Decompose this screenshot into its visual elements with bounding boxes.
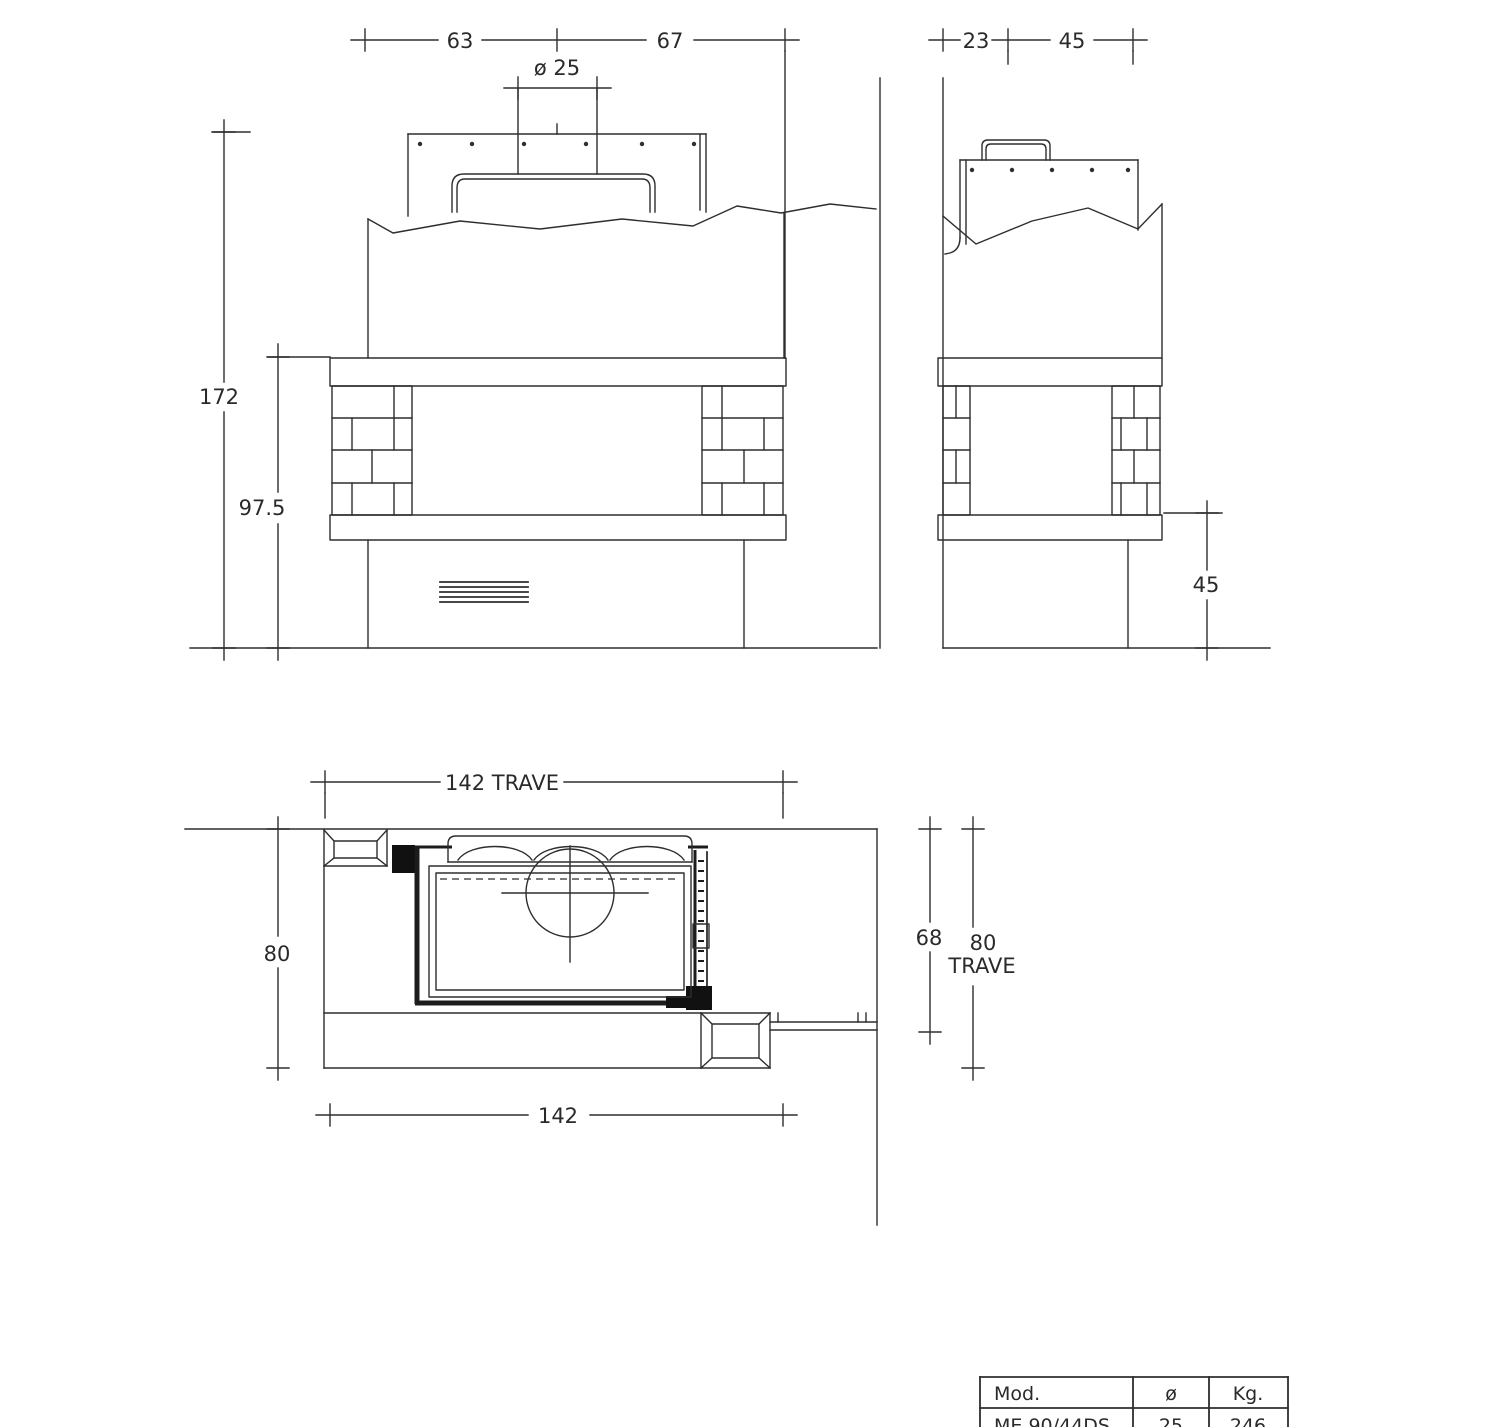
- dim-inner-depth-label: 68: [916, 926, 943, 950]
- side-break-line: [943, 204, 1162, 244]
- right-hinge-block: [686, 986, 712, 1010]
- left-hinge-block: [392, 845, 415, 873]
- dim-depth-front-label: 45: [1059, 29, 1086, 53]
- dim-width-right-label: 67: [657, 29, 684, 53]
- side-mantel-and-bricks: [938, 358, 1270, 648]
- plan-outline: [185, 829, 877, 1225]
- plan-view: 142 TRAVE: [185, 771, 1016, 1225]
- table-row-weight: 246: [1230, 1415, 1266, 1427]
- side-view: 23 45: [929, 29, 1270, 660]
- dim-opening-height-label: 97.5: [239, 496, 286, 520]
- front-break-line: [368, 204, 876, 233]
- table-header-diameter: ø: [1165, 1383, 1177, 1405]
- plan-depth-dimension: 80: [264, 817, 291, 1080]
- dim-plan-width-label: 142: [538, 1104, 578, 1128]
- dim-width-left-label: 63: [447, 29, 474, 53]
- flue-circle: [502, 846, 648, 962]
- fireplace-dimension-sheet: 63 67 ø 25: [0, 0, 1500, 1427]
- dim-plan-depth-label: 80: [264, 942, 291, 966]
- dim-beam-width-label: 142 TRAVE: [445, 771, 559, 795]
- front-mantel-and-bricks: [330, 358, 786, 540]
- spec-table: Mod. ø Kg. ME 90/44DS 25 246: [980, 1377, 1288, 1427]
- plan-inner-depth-dimension: 68: [916, 817, 943, 1044]
- plan-firebox: [392, 836, 712, 1010]
- table-row-diameter: 25: [1159, 1415, 1183, 1427]
- dim-flue-label: ø 25: [534, 56, 580, 80]
- dim-depth-rear-label: 23: [963, 29, 990, 53]
- dim-beam-word-label: TRAVE: [947, 954, 1015, 978]
- front-view: 63 67 ø 25: [190, 29, 880, 660]
- front-total-height-dimension: 172: [199, 120, 250, 660]
- side-top-depth-dimension: 23 45: [929, 29, 1147, 64]
- plan-beam-width-dimension: 142 TRAVE: [311, 771, 797, 818]
- beam-end-block: [324, 830, 387, 866]
- side-hearth-height-dimension: 45: [1164, 501, 1222, 660]
- side-hood-structure: [943, 78, 1162, 648]
- front-hood-structure: [368, 124, 876, 358]
- dim-hearth-height-label: 45: [1193, 573, 1220, 597]
- technical-drawing-canvas: 63 67 ø 25: [0, 0, 1500, 1427]
- plan-step-and-pavement: [701, 1013, 877, 1068]
- vent-grille: [440, 582, 528, 602]
- dim-total-height-label: 172: [199, 385, 239, 409]
- dim-beam-depth-label: 80: [970, 931, 997, 955]
- plan-beam-depth-dimension: 80 TRAVE: [947, 817, 1015, 1080]
- front-opening-height-dimension: 97.5: [239, 344, 330, 660]
- front-flue-dimension: ø 25: [504, 56, 611, 174]
- table-header-model: Mod.: [994, 1383, 1040, 1405]
- front-base: [190, 540, 877, 648]
- table-row-model: ME 90/44DS: [994, 1415, 1110, 1427]
- table-header-weight: Kg.: [1233, 1383, 1264, 1405]
- plan-width-dimension: 142: [316, 1104, 797, 1128]
